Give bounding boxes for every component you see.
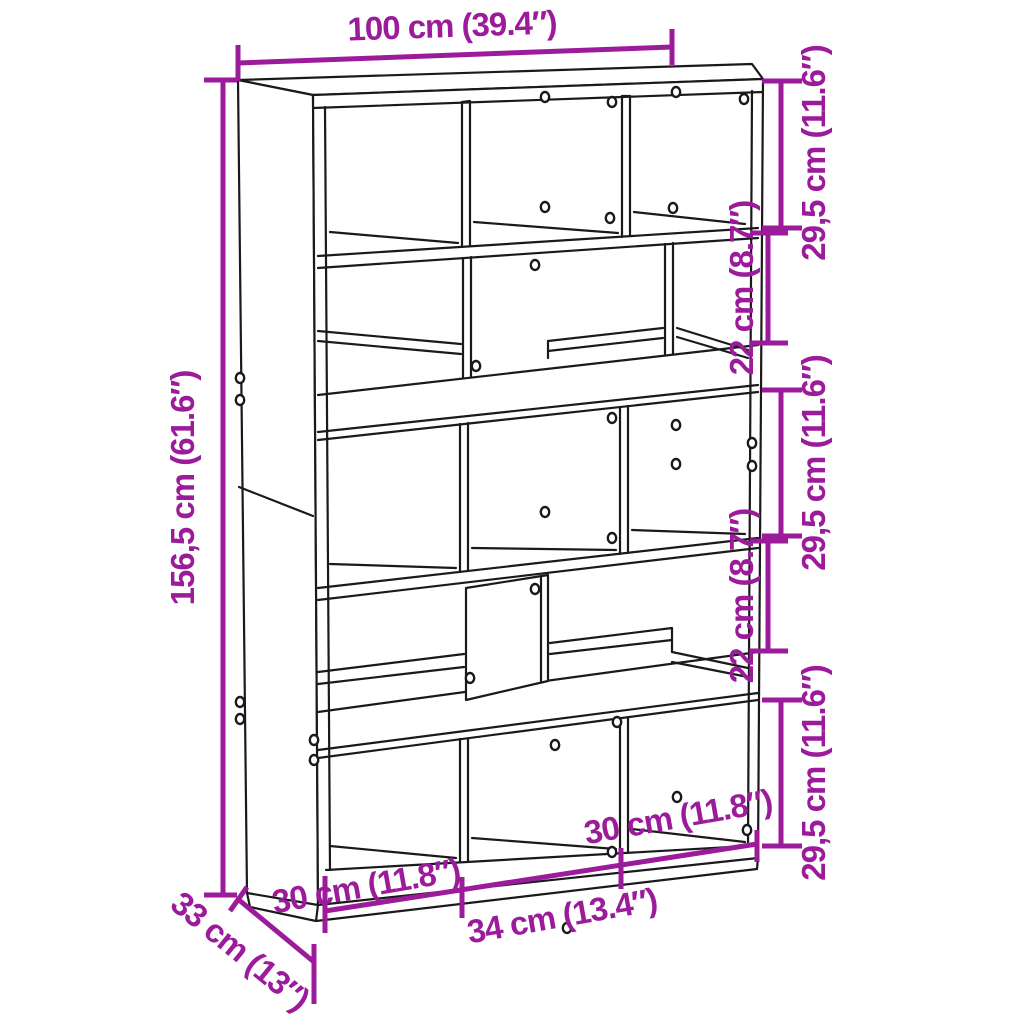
dim-line-left-height (204, 80, 237, 895)
dim-label-height-left: 156,5 cm (61.6″) (164, 371, 202, 606)
left-side-face (238, 80, 318, 905)
dim-label-right-section-4: 22 cm (8.7″) (723, 509, 761, 683)
dim-label-width-top: 100 cm (39.4″) (347, 3, 557, 48)
bookcase-body (238, 64, 763, 905)
dim-label-right-section-1: 29,5 cm (11.6″) (795, 45, 833, 260)
bookcase-drawing (0, 0, 1024, 1024)
dim-label-right-section-3: 29,5 cm (11.6″) (795, 355, 833, 570)
dim-label-right-section-2: 22 cm (8.7″) (723, 201, 761, 375)
dimension-diagram: 100 cm (39.4″) 156,5 cm (61.6″) 29,5 cm … (0, 0, 1024, 1024)
front-face (313, 79, 763, 905)
dim-label-right-section-5: 29,5 cm (11.6″) (795, 665, 833, 880)
